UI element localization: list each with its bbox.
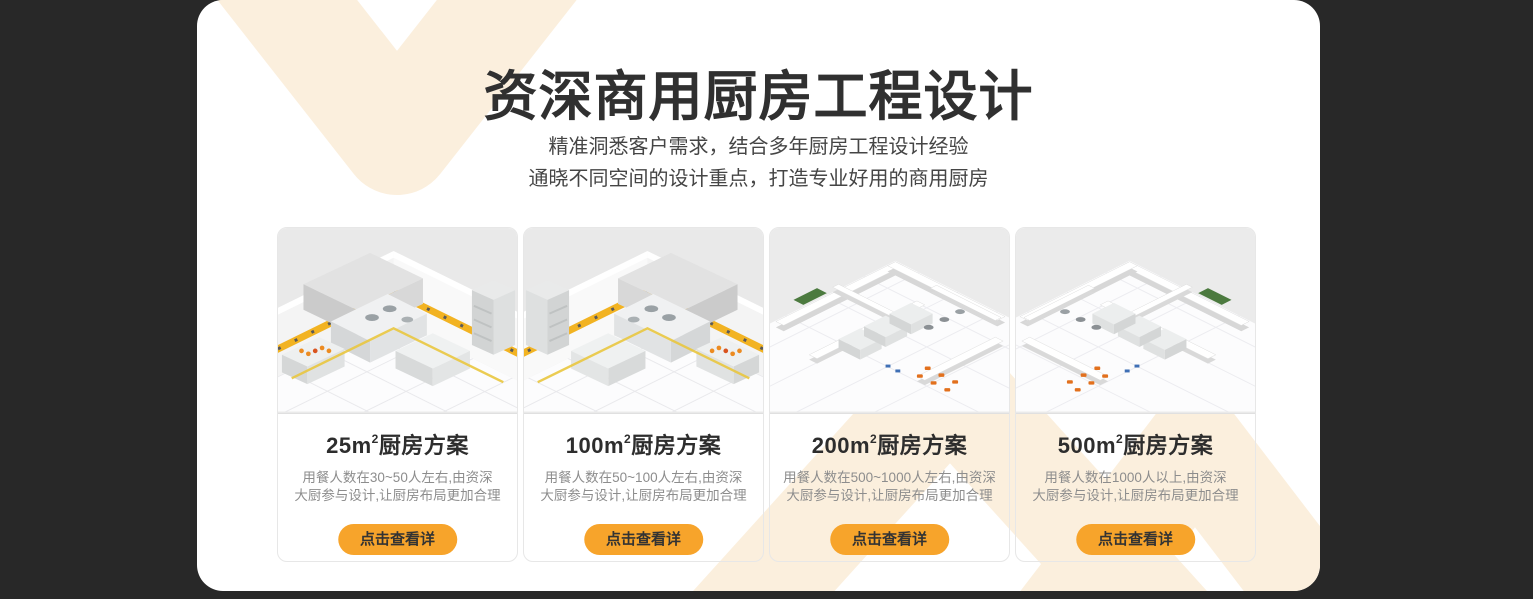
view-details-button-200m2[interactable]: 点击查看详情 xyxy=(830,524,950,555)
plan-card-25m2[interactable]: 25m2厨房方案 用餐人数在30~50人左右,由资深 大厨参与设计,让厨房布局更… xyxy=(277,227,518,562)
kitchen-render-500m2 xyxy=(1016,228,1255,414)
page-subtitle: 精准洞悉客户需求，结合多年厨房工程设计经验 通晓不同空间的设计重点，打造专业好用… xyxy=(197,131,1320,195)
page-background: 资深商用厨房工程设计 精准洞悉客户需求，结合多年厨房工程设计经验 通晓不同空间的… xyxy=(0,0,1533,599)
view-details-button-25m2[interactable]: 点击查看详情 xyxy=(338,524,458,555)
kitchen-render-25m2 xyxy=(278,228,517,414)
plan-card-500m2[interactable]: 500m2厨房方案 用餐人数在1000人以上,由资深 大厨参与设计,让厨房布局更… xyxy=(1015,227,1256,562)
plan-description-200m2: 用餐人数在500~1000人左右,由资深 大厨参与设计,让厨房布局更加合理 xyxy=(770,469,1009,505)
plan-card-200m2[interactable]: 200m2厨房方案 用餐人数在500~1000人左右,由资深 大厨参与设计,让厨… xyxy=(769,227,1010,562)
kitchen-render-100m2 xyxy=(524,228,763,414)
kitchen-render-200m2 xyxy=(770,228,1009,414)
plan-description-25m2: 用餐人数在30~50人左右,由资深 大厨参与设计,让厨房布局更加合理 xyxy=(278,469,517,505)
plan-description-100m2: 用餐人数在50~100人左右,由资深 大厨参与设计,让厨房布局更加合理 xyxy=(524,469,763,505)
content-panel: 资深商用厨房工程设计 精准洞悉客户需求，结合多年厨房工程设计经验 通晓不同空间的… xyxy=(197,0,1320,591)
page-subtitle-line1: 精准洞悉客户需求，结合多年厨房工程设计经验 xyxy=(549,136,969,158)
view-details-button-100m2[interactable]: 点击查看详情 xyxy=(584,524,704,555)
plan-title-100m2: 100m2厨房方案 xyxy=(524,428,763,460)
plan-title-500m2: 500m2厨房方案 xyxy=(1016,428,1255,460)
page-title: 资深商用厨房工程设计 xyxy=(197,52,1320,131)
plan-title-200m2: 200m2厨房方案 xyxy=(770,428,1009,460)
plan-cards: 25m2厨房方案 用餐人数在30~50人左右,由资深 大厨参与设计,让厨房布局更… xyxy=(277,227,1258,562)
plan-title-25m2: 25m2厨房方案 xyxy=(278,428,517,460)
plan-description-500m2: 用餐人数在1000人以上,由资深 大厨参与设计,让厨房布局更加合理 xyxy=(1016,469,1255,505)
plan-card-100m2[interactable]: 100m2厨房方案 用餐人数在50~100人左右,由资深 大厨参与设计,让厨房布… xyxy=(523,227,764,562)
view-details-button-500m2[interactable]: 点击查看详情 xyxy=(1076,524,1196,555)
page-subtitle-line2: 通晓不同空间的设计重点，打造专业好用的商用厨房 xyxy=(529,168,989,190)
